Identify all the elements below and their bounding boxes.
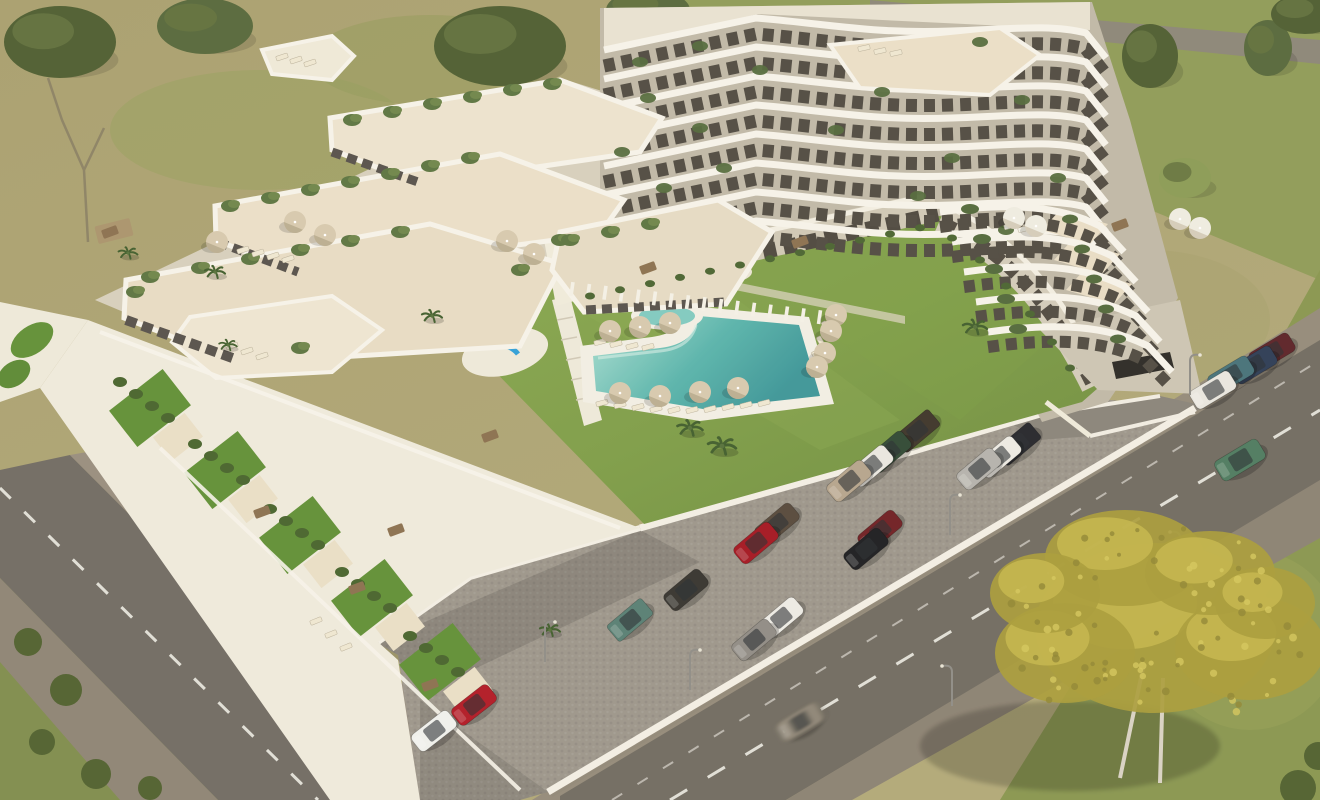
aerial-architectural-render: Aerial 3D render of a white terraced apa… [0, 0, 1320, 800]
warm-light-overlay [0, 0, 1320, 800]
aerial-render-viewport: Aerial 3D render of a white terraced apa… [0, 0, 1320, 800]
